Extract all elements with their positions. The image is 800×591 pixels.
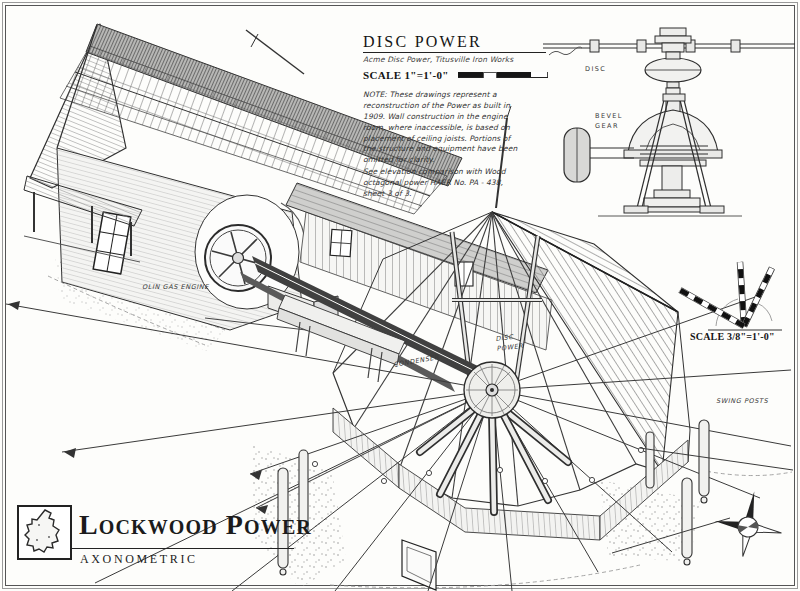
axonometric-drawing <box>0 0 800 591</box>
graphic-scale-bar <box>458 72 548 78</box>
disc <box>464 362 520 418</box>
detail-drawing <box>543 28 795 216</box>
label-bevel-gear: BEVEL GEAR <box>595 112 631 132</box>
label-swing-posts: SWING POSTS <box>716 397 768 405</box>
sheet-title: Lockwood Power <box>79 511 312 539</box>
timber-beams <box>420 404 568 512</box>
label-disc-power: DISC POWER <box>495 331 533 354</box>
drawing-sheet: DISC POWER Acme Disc Power, Titusville I… <box>0 0 800 591</box>
note-text: NOTE: These drawings represent a reconst… <box>363 90 519 166</box>
title-rule <box>72 548 294 549</box>
detail-title: DISC POWER <box>363 33 546 53</box>
county-outline-icon <box>19 507 70 558</box>
detail-subtitle: Acme Disc Power, Titusville Iron Works <box>363 55 546 64</box>
axo-scale-label: SCALE 3/8"=1'-0" <box>690 331 775 342</box>
detail-scale-label: SCALE 1"=1'-0" <box>363 69 449 81</box>
gallery-window <box>330 229 352 256</box>
flywheel <box>205 225 271 291</box>
title-block: DISC POWER Acme Disc Power, Titusville I… <box>363 33 546 81</box>
north-arrow-icon <box>709 486 787 563</box>
label-disc: DISC <box>585 65 606 73</box>
label-olin-gas-engine: OLIN GAS ENGINE <box>142 283 209 291</box>
axo-scale-bars <box>680 262 782 330</box>
project-logo <box>17 505 72 560</box>
reference-note-text: See elevation comparison with Wood octag… <box>363 167 513 200</box>
sheet-subtitle: AXONOMETRIC <box>80 552 198 567</box>
